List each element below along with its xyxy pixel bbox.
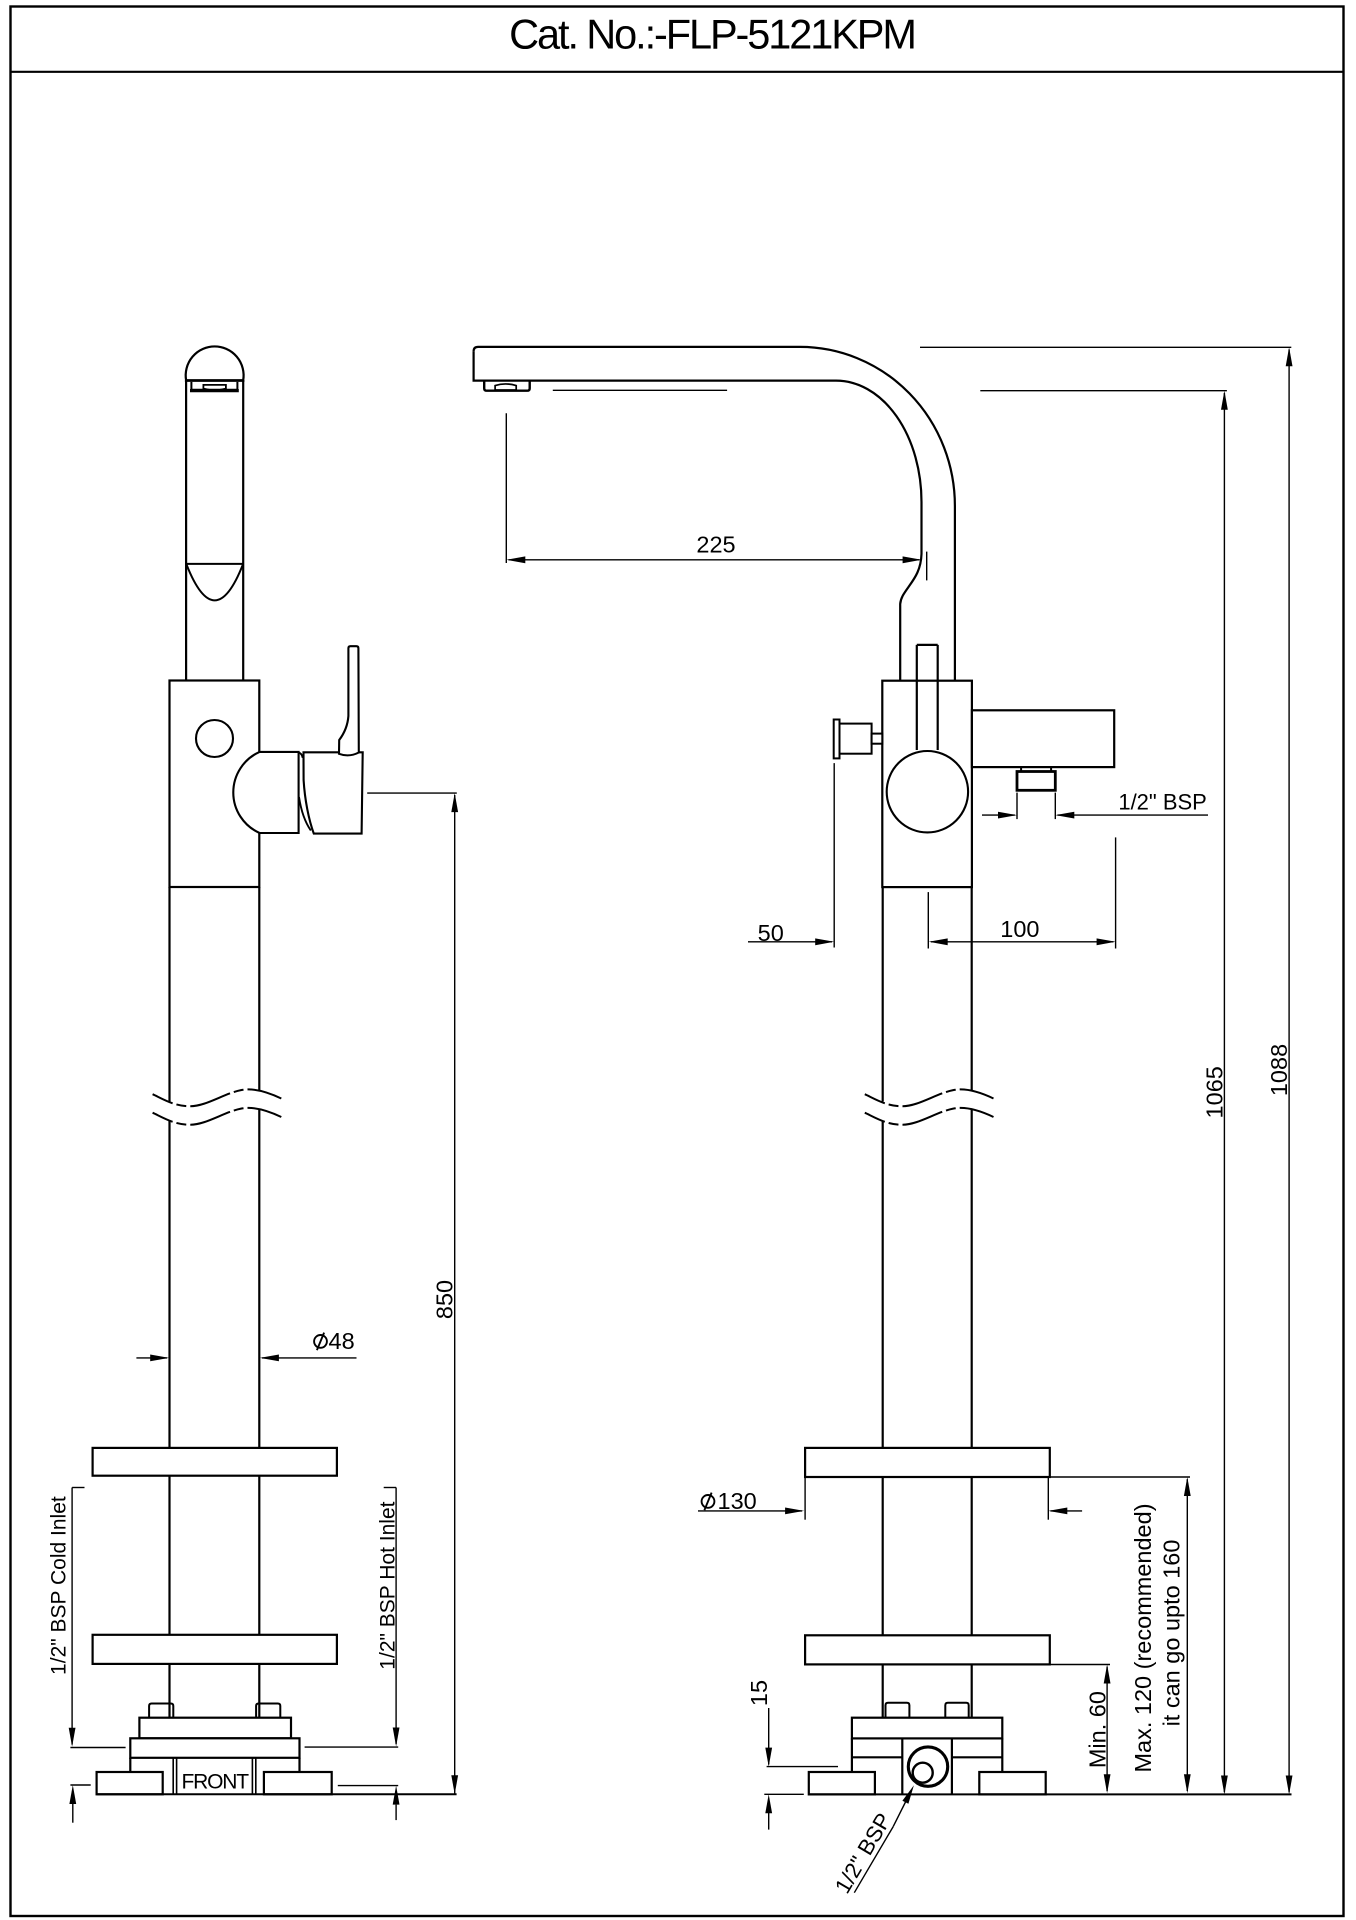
svg-text:130: 130 <box>718 1488 757 1514</box>
svg-text:15: 15 <box>746 1680 772 1706</box>
svg-text:it can go upto 160: it can go upto 160 <box>1158 1540 1184 1727</box>
svg-text:225: 225 <box>696 532 735 558</box>
svg-text:48: 48 <box>329 1328 355 1354</box>
svg-text:Max. 120 (recommended): Max. 120 (recommended) <box>1130 1503 1156 1772</box>
svg-text:1088: 1088 <box>1266 1044 1292 1096</box>
svg-text:Cat. No.:-FLP-5121KPM: Cat. No.:-FLP-5121KPM <box>509 11 915 58</box>
svg-text:100: 100 <box>1000 916 1039 942</box>
svg-text:FRONT: FRONT <box>182 1771 250 1794</box>
svg-text:850: 850 <box>432 1280 458 1319</box>
svg-text:Min. 60: Min. 60 <box>1085 1691 1111 1768</box>
svg-text:1/2" BSP Cold Inlet: 1/2" BSP Cold Inlet <box>48 1496 71 1675</box>
svg-text:1065: 1065 <box>1202 1066 1228 1118</box>
svg-text:1/2" BSP: 1/2" BSP <box>1118 790 1207 815</box>
